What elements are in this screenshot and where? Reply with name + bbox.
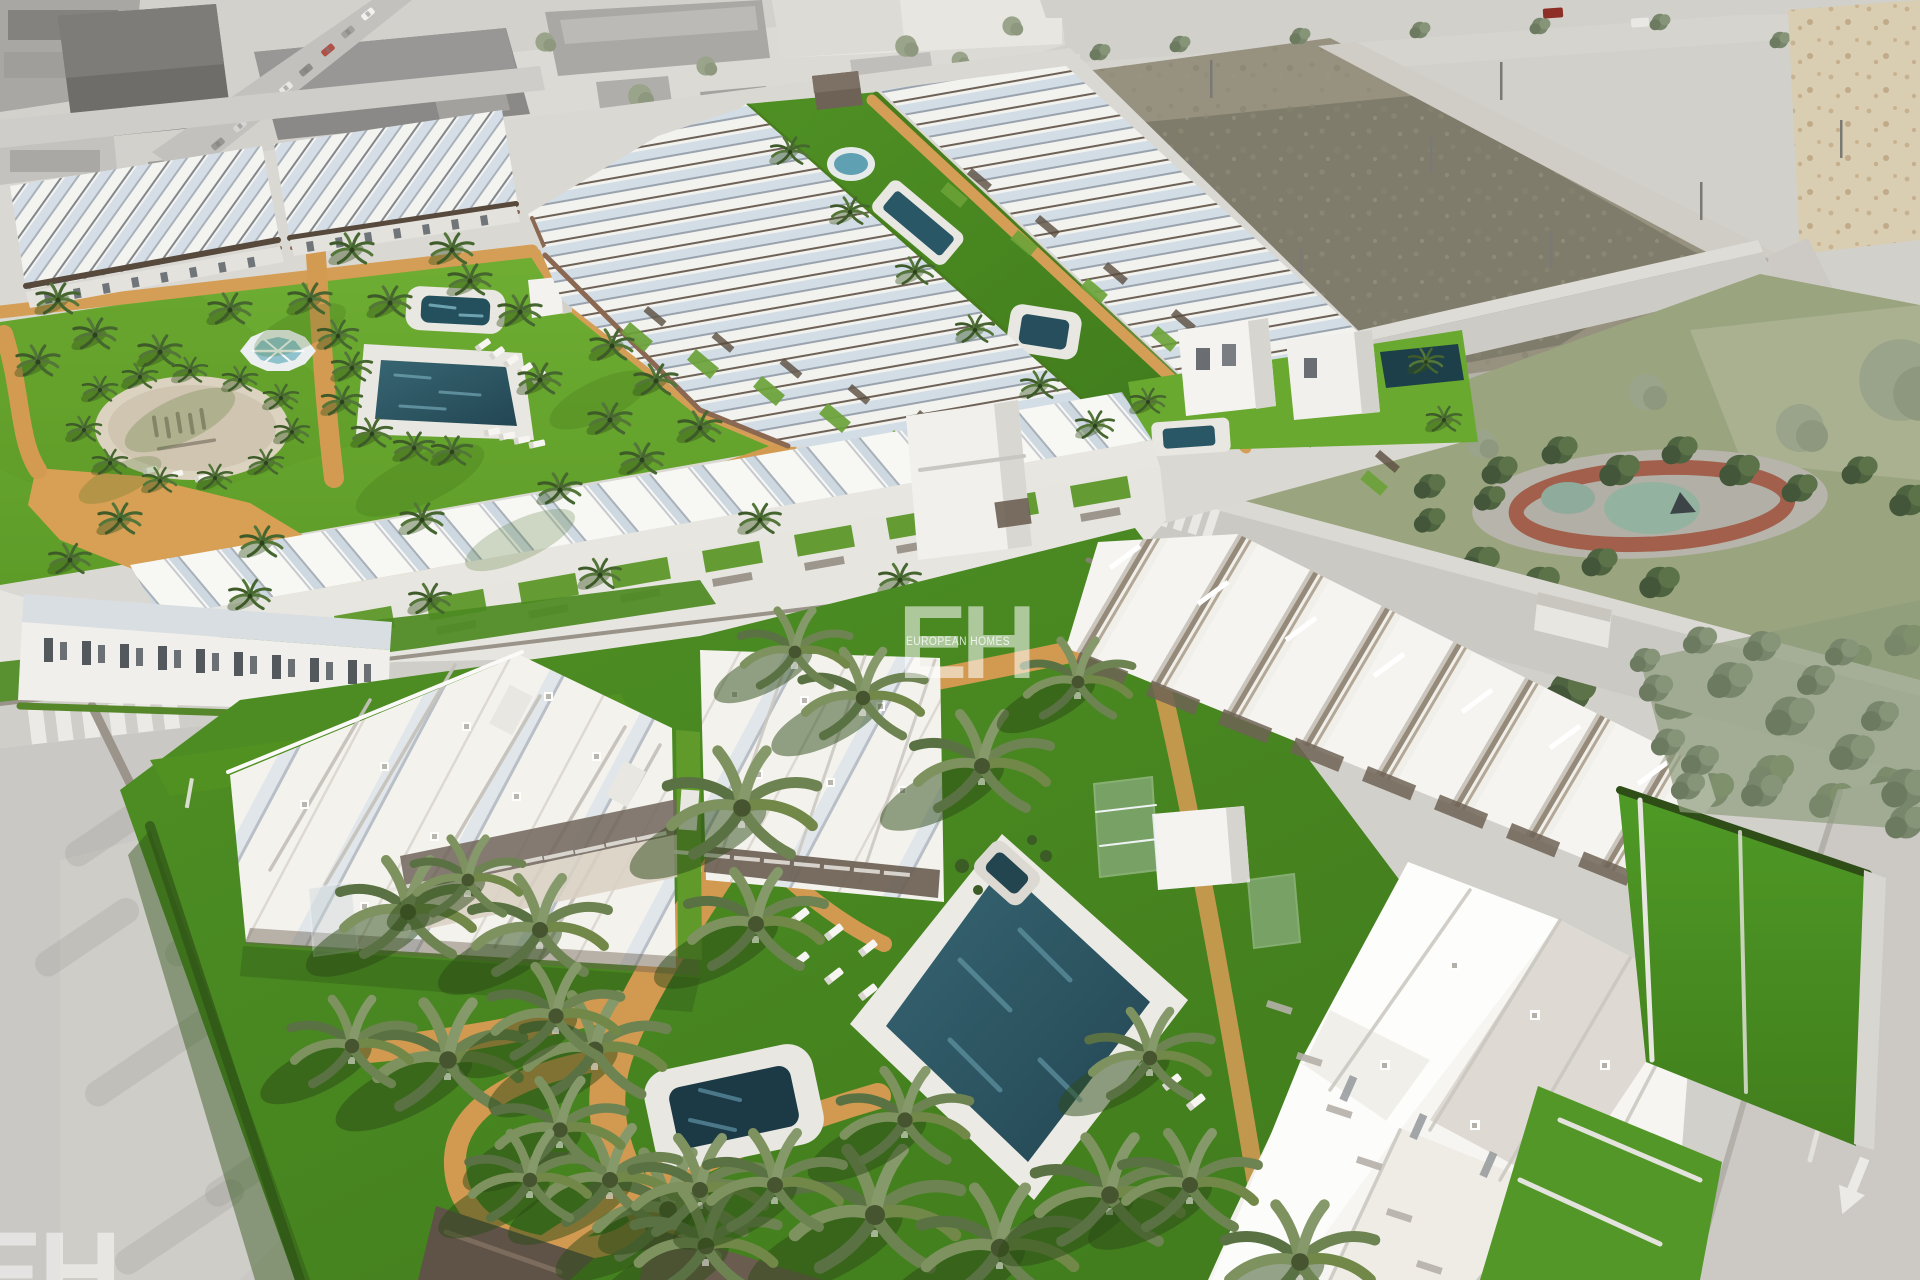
- svg-text:EH: EH: [0, 1209, 118, 1280]
- svg-text:EUROPEAN HOMES: EUROPEAN HOMES: [906, 636, 1010, 648]
